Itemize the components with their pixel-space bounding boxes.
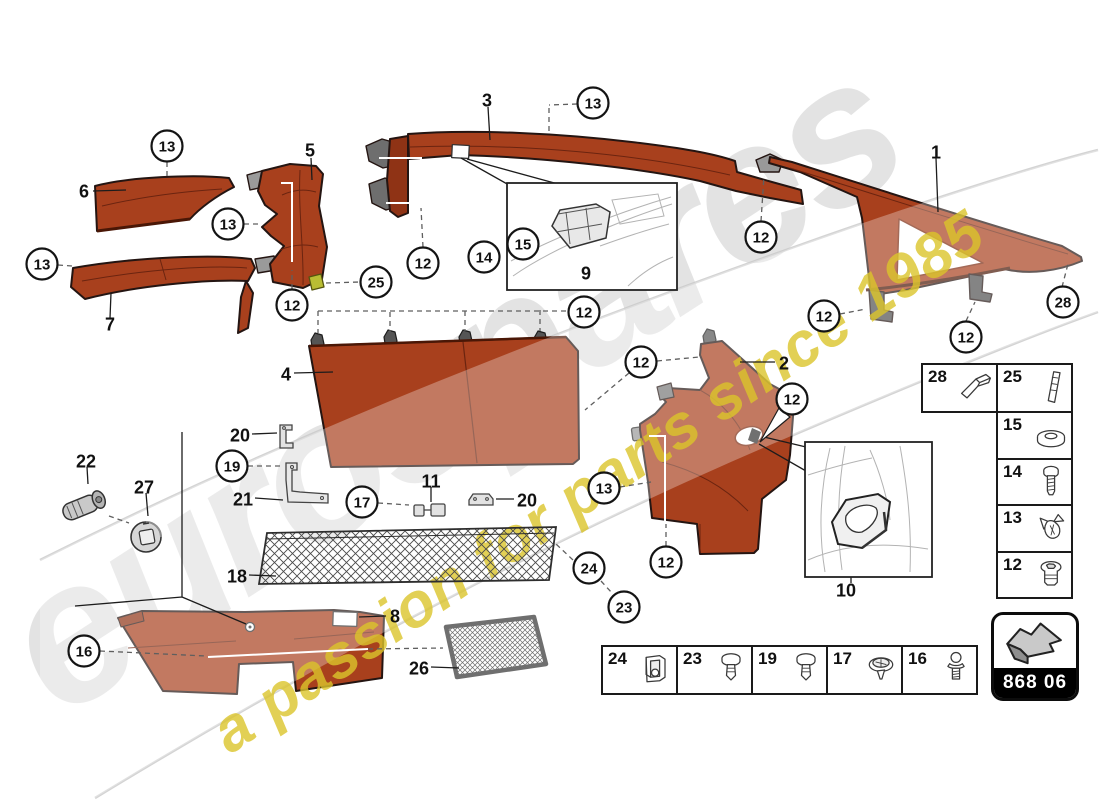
callout-12[interactable]: 12 bbox=[809, 301, 840, 332]
legend-item-number: 16 bbox=[908, 649, 927, 669]
part-label-27: 27 bbox=[134, 477, 154, 497]
legend-item-number: 17 bbox=[833, 649, 852, 669]
clamp-icon bbox=[638, 650, 674, 695]
part-label-18: 18 bbox=[227, 566, 247, 586]
callout-14[interactable]: 14 bbox=[469, 242, 500, 273]
callout-24[interactable]: 24 bbox=[574, 553, 605, 584]
callout-17[interactable]: 17 bbox=[347, 487, 378, 518]
part-label-1: 1 bbox=[931, 142, 941, 162]
grommet-nut-icon bbox=[1033, 556, 1069, 601]
svg-text:12: 12 bbox=[415, 255, 432, 272]
part-26-mesh-mat[interactable] bbox=[446, 617, 546, 677]
washer-icon bbox=[1033, 416, 1069, 461]
part-label-8: 8 bbox=[390, 606, 400, 626]
callout-12[interactable]: 12 bbox=[277, 290, 308, 321]
part-label-21: 21 bbox=[233, 489, 253, 509]
legend-item-number: 25 bbox=[1003, 367, 1022, 387]
ball-stud-icon bbox=[938, 650, 974, 695]
direction-arrow-icon bbox=[994, 615, 1076, 668]
part-label-26: 26 bbox=[409, 658, 429, 678]
part-label-5: 5 bbox=[305, 140, 315, 160]
part-label-20: 20 bbox=[230, 425, 250, 445]
part-label-9: 9 bbox=[581, 263, 591, 283]
svg-text:15: 15 bbox=[515, 236, 532, 253]
part-label-7: 7 bbox=[105, 314, 115, 334]
svg-text:12: 12 bbox=[753, 229, 770, 246]
callout-28[interactable]: 28 bbox=[1048, 287, 1079, 318]
callout-12[interactable]: 12 bbox=[951, 322, 982, 353]
callout-12[interactable]: 12 bbox=[569, 297, 600, 328]
parts-diagram-page: eurospares bbox=[0, 0, 1100, 800]
callout-13[interactable]: 13 bbox=[213, 209, 244, 240]
legend-item-23[interactable]: 23 bbox=[676, 645, 753, 695]
legend-item-12[interactable]: 12 bbox=[996, 551, 1073, 599]
legend-item-number: 15 bbox=[1003, 415, 1022, 435]
legend-item-17[interactable]: 17 bbox=[826, 645, 903, 695]
callout-23[interactable]: 23 bbox=[609, 592, 640, 623]
callout-19[interactable]: 19 bbox=[217, 451, 248, 482]
svg-text:12: 12 bbox=[284, 297, 301, 314]
svg-text:12: 12 bbox=[633, 354, 650, 371]
svg-text:13: 13 bbox=[596, 480, 613, 497]
callout-13[interactable]: 13 bbox=[578, 88, 609, 119]
legend-item-25[interactable]: 25 bbox=[996, 363, 1073, 413]
callout-16[interactable]: 16 bbox=[69, 636, 100, 667]
screw-icon bbox=[1033, 463, 1069, 508]
svg-text:17: 17 bbox=[354, 494, 371, 511]
trim-strip-icon bbox=[1033, 368, 1069, 413]
part-label-3: 3 bbox=[482, 90, 492, 110]
svg-text:12: 12 bbox=[784, 391, 801, 408]
callout-12[interactable]: 12 bbox=[746, 222, 777, 253]
callout-12[interactable]: 12 bbox=[626, 347, 657, 378]
svg-text:16: 16 bbox=[76, 643, 93, 660]
wedge-strip-icon bbox=[958, 368, 994, 413]
svg-text:13: 13 bbox=[34, 256, 51, 273]
callout-13[interactable]: 13 bbox=[152, 131, 183, 162]
legend-item-number: 28 bbox=[928, 367, 947, 387]
svg-text:13: 13 bbox=[585, 95, 602, 112]
part-7-trim[interactable] bbox=[71, 257, 255, 333]
svg-text:19: 19 bbox=[224, 458, 241, 475]
legend-item-number: 24 bbox=[608, 649, 627, 669]
diagram-code-badge[interactable]: 868 06 bbox=[991, 612, 1079, 701]
svg-text:12: 12 bbox=[816, 308, 833, 325]
svg-text:25: 25 bbox=[368, 274, 385, 291]
spring-clip-icon bbox=[1033, 509, 1069, 554]
part-20-bracket-right[interactable] bbox=[469, 494, 493, 505]
inset-box-part-10[interactable] bbox=[805, 442, 932, 577]
svg-text:23: 23 bbox=[616, 599, 633, 616]
diagram-code: 868 06 bbox=[994, 668, 1076, 698]
svg-text:14: 14 bbox=[476, 249, 493, 266]
push-rivet-icon bbox=[713, 650, 749, 695]
legend-item-number: 12 bbox=[1003, 555, 1022, 575]
legend-item-number: 13 bbox=[1003, 508, 1022, 528]
washer-screw-icon bbox=[863, 650, 899, 695]
part-label-20: 20 bbox=[517, 490, 537, 510]
callout-12[interactable]: 12 bbox=[651, 547, 682, 578]
legend-item-19[interactable]: 19 bbox=[751, 645, 828, 695]
part-label-11: 11 bbox=[421, 471, 440, 491]
legend-item-14[interactable]: 14 bbox=[996, 458, 1073, 506]
callout-13[interactable]: 13 bbox=[589, 473, 620, 504]
callout-12[interactable]: 12 bbox=[408, 248, 439, 279]
part-label-2: 2 bbox=[779, 353, 789, 373]
part-label-10: 10 bbox=[836, 580, 856, 600]
svg-text:12: 12 bbox=[658, 554, 675, 571]
svg-text:24: 24 bbox=[581, 560, 598, 577]
callout-13[interactable]: 13 bbox=[27, 249, 58, 280]
svg-text:28: 28 bbox=[1055, 294, 1072, 311]
push-rivet-icon bbox=[788, 650, 824, 695]
part-18-net[interactable] bbox=[259, 527, 556, 584]
part-27-grommet-cap[interactable] bbox=[131, 522, 161, 552]
svg-text:12: 12 bbox=[576, 304, 593, 321]
legend-item-15[interactable]: 15 bbox=[996, 411, 1073, 460]
part-25-clip-highlight bbox=[309, 274, 324, 290]
legend-item-number: 14 bbox=[1003, 462, 1022, 482]
callout-15[interactable]: 15 bbox=[508, 229, 539, 260]
legend-item-16[interactable]: 16 bbox=[901, 645, 978, 695]
svg-text:13: 13 bbox=[220, 216, 237, 233]
part-label-22: 22 bbox=[76, 451, 96, 471]
callout-12[interactable]: 12 bbox=[777, 384, 808, 415]
callout-25[interactable]: 25 bbox=[361, 267, 392, 298]
svg-text:12: 12 bbox=[958, 329, 975, 346]
svg-text:13: 13 bbox=[159, 138, 176, 155]
legend-item-13[interactable]: 13 bbox=[996, 504, 1073, 553]
part-label-4: 4 bbox=[281, 364, 291, 384]
legend-item-28[interactable]: 28 bbox=[921, 363, 998, 413]
legend-item-24[interactable]: 24 bbox=[601, 645, 678, 695]
part-label-6: 6 bbox=[79, 181, 89, 201]
legend-item-number: 23 bbox=[683, 649, 702, 669]
legend-item-number: 19 bbox=[758, 649, 777, 669]
